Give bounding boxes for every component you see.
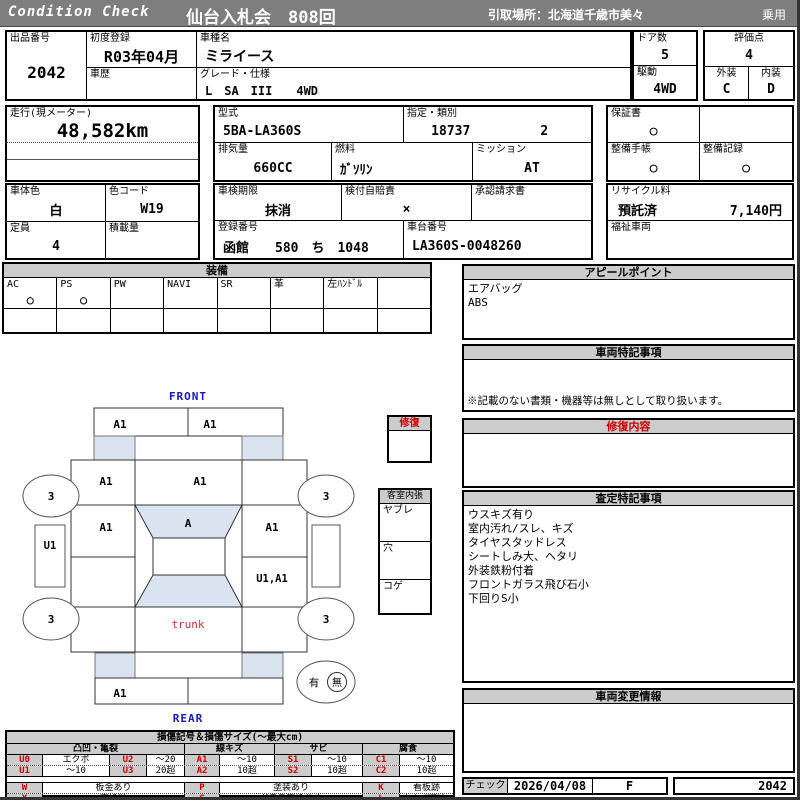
drive-label: 駆動 [634,66,696,79]
recycle-cell: リサイクル料 預託済 7,140円 [608,185,792,221]
tool-yes-label: 有 [309,676,320,689]
chassis-label: 車台番号 [404,221,591,234]
color-code-value: W19 [106,198,198,221]
model-code-label: 型式 [215,107,403,120]
assessment-panel: 査定特記事項 ウスキズ有り 室内汚れ/スレ、キズ タイヤスタッドレス シートしみ… [462,490,795,683]
approval-label: 承認請求書 [472,185,591,198]
equipment-row-empty [4,309,430,332]
equip-ps-label: PS [57,278,109,291]
appeal-line: ABS [468,296,789,310]
appeal-line: エアバッグ [468,282,789,296]
class-number-value1: 18737 [404,120,498,142]
body-color-value: 白 [7,198,105,221]
mileage-label: 走行(現メーター) [7,107,198,120]
change-info-header: 車両変更情報 [464,690,793,704]
front-door-right-code: A1 [265,521,279,534]
roof [153,538,225,575]
legend-code: C2 [363,766,400,776]
assessment-header: 査定特記事項 [464,492,793,506]
doors-drive-box: ドア数 5 駆動 4WD [632,30,698,101]
equip-ps-value: ○ [57,291,109,308]
legend-desc: 10超 [220,766,275,776]
interior-value: D [749,80,793,99]
legend-desc: 10超 [312,766,363,776]
appeal-panel: アピールポイント エアバッグ ABS [462,264,795,340]
exterior-label: 外装 [705,67,748,80]
service-book-cell: 整備手帳 ○ [608,143,700,180]
vehicle-notes-disclaimer: ※記載のない書類・機器等は無しとして取り扱います。 [467,393,728,408]
repair-content-header: 修復内容 [464,420,793,434]
history-cell: 車歴 [87,68,196,99]
front-bumper-left-code: A1 [113,418,127,431]
wheel-front-right-code: 3 [323,490,330,503]
recycle-box: リサイクル料 預託済 7,140円 福祉車両 [606,183,794,260]
check-lot-value: 2042 [675,779,793,793]
equip-ac-label: AC [4,278,56,291]
welfare-value [608,234,792,258]
assessment-line: 下回りS小 [468,592,789,606]
payload-value [106,235,198,258]
wheel-front-left-code: 3 [48,490,55,503]
fuel-label: 燃料 [332,143,472,156]
wheel-rear-right-code: 3 [323,613,330,626]
color-code-cell: 色コード W19 [106,185,198,221]
legend-code: A2 [185,766,220,776]
legend-desc: ～20 [147,755,185,765]
auction-title: 仙台入札会 808回 [186,3,336,28]
recycle-status: 預託済 [618,200,657,219]
legend-code: C1 [363,755,400,765]
rear-door-right-code: U1,A1 [256,573,288,585]
plate-value: 函館 580 ち 1048 [215,234,403,258]
legend-group-corrosion: 腐食 [363,744,453,754]
top-info-box: 出品番号 2042 初度登録 R03年04月 車歴 車種名 ミライース グレード… [5,30,632,101]
score-label: 評価点 [705,32,793,45]
meter-history-row2 [7,159,198,183]
check-lot-box: 2042 [673,777,795,795]
legend-desc: 10超 [400,766,453,776]
warranty-cell: 保証書 ○ [608,107,700,142]
first-registration-cell: 初度登録 R03年04月 [87,32,196,68]
service-book-label: 整備手帳 [608,143,699,156]
inspection-value: 抹消 [215,198,341,220]
windshield-code: A [185,517,192,530]
repair-mark-header: 修復 [389,417,430,431]
assessment-line: 室内汚れ/スレ、キズ [468,522,789,536]
service-book-value: ○ [608,156,699,180]
registration-box: 車検期限 抹消 検付自賠責 × 承認請求書 登録番号 函館 580 ち 1048… [213,183,593,260]
payload-cell: 積載量 [106,222,198,258]
ext-int-row: 外装 C 内装 D [705,67,793,99]
grade-cell: グレード・仕様 L SA III 4WD [197,68,630,99]
model-cell: 車種名 ミライース [197,32,630,68]
equip-pw-label: PW [111,278,163,291]
pickup-location: 引取場所：北海道千歳市美々 [488,6,644,23]
exterior-value: C [705,80,748,99]
legend-desc: エクボ [43,755,110,765]
approval-cell: 承認請求書 [472,185,591,220]
class-number-value2: 2 [498,120,592,142]
transmission-label: ミッション [473,143,591,156]
capacity-label: 定員 [7,222,105,235]
equipment-header: 装備 [4,264,430,278]
service-record-cell: 整備記録 ○ [700,143,792,180]
front-bumper-right-code: A1 [203,418,217,431]
recycle-label: リサイクル料 [608,185,792,198]
drive-cell: 駆動 4WD [634,66,696,99]
capacity-cell: 定員 4 [7,222,106,258]
history-value [87,81,196,99]
equip-leather-value [271,291,323,308]
sill-right [312,525,340,587]
repair-mark-box: 修復 [387,415,432,463]
check-label: チェック [464,779,508,793]
equip-navi-value [164,291,216,308]
displacement-value: 660CC [215,156,331,180]
legend-code: U0 [7,755,43,765]
rear-bumper-left-code: A1 [113,687,127,700]
doors-value: 5 [634,45,696,65]
inspection-cell: 車検期限 抹消 [215,185,342,220]
exterior-cell: 外装 C [705,67,749,99]
class-number-label: 指定・類別 [404,107,591,120]
brand-logo: Condition Check [8,4,149,20]
legend-desc: 20超 [147,766,185,776]
meter-history-row1 [7,142,198,159]
displacement-cell: 排気量 660CC [215,143,332,180]
drive-value: 4WD [634,79,696,99]
cabin-lining-box: 客室内張 ヤブレ 穴 コゲ [378,488,432,615]
class-number-cell: 指定・類別 18737 2 [404,107,591,142]
legend-group-rust: サビ [275,744,363,754]
car-diagram: FRONT A1 A1 A1 A1 A A1 A1 U1,A1 trunk U1… [10,388,370,736]
rear-label: REAR [173,712,204,725]
interior-label: 内装 [749,67,793,80]
model-code-value: 5BA-LA360S [215,120,403,142]
grade-label: グレード・仕様 [197,68,630,81]
taillight-right [242,653,283,678]
appeal-header: アピールポイント [464,266,793,280]
chassis-value: LA360S-0048260 [404,234,591,258]
modelcode-class-row: 型式 5BA-LA360S 指定・類別 18737 2 [215,107,591,143]
approval-value [472,198,591,220]
cabin-hole-label: 穴 [380,542,430,555]
service-record-value: ○ [700,156,792,180]
fuel-value: ｶﾞｿﾘﾝ [332,156,472,180]
assessment-line: ウスキズ有り [468,508,789,522]
legend-code: W [7,783,43,793]
legend-desc: ～10 [220,755,275,765]
sill-left [35,525,65,587]
legend-title: 損傷記号＆損傷サイズ(～最大cm) [7,732,453,744]
body-color-label: 車体色 [7,185,105,198]
color-code-label: 色コード [106,185,198,198]
equip-sr-value [218,291,270,308]
plate-label: 登録番号 [215,221,403,234]
welfare-cell: 福祉車両 [608,221,792,258]
check-bar: チェック 2026/04/08 F [462,777,668,795]
warranty-label: 保証書 [608,107,699,120]
score-cell: 評価点 4 [705,32,793,67]
assessment-line: フロントガラス飛び石小 [468,578,789,592]
model-code-cell: 型式 5BA-LA360S [215,107,404,142]
equipment-box: 装備 AC○ PS○ PW NAVI SR 革 左ﾊﾝﾄﾞﾙ [2,262,432,334]
title-bar: Condition Check 仙台入札会 808回 引取場所：北海道千歳市美々… [0,0,800,27]
legend-code: P [185,783,220,793]
legend-code: A1 [185,755,220,765]
first-registration-value: R03年04月 [87,45,196,67]
liability-cell: 検付自賠責 × [342,185,472,220]
liability-label: 検付自賠責 [342,185,471,198]
legend-code: S2 [275,766,312,776]
legend-code: U3 [110,766,147,776]
cabin-burn-label: コゲ [380,580,430,593]
legend-code: S1 [275,755,312,765]
vehicle-notes-panel: 車両特記事項 ※記載のない書類・機器等は無しとして取り扱います。 [462,344,795,412]
mileage-value: 48,582km [7,120,198,142]
first-registration-label: 初度登録 [87,32,196,45]
chassis-cell: 車台番号 LA360S-0048260 [404,221,591,258]
legend-group-scratch: 線キズ [185,744,275,754]
equip-lhd-value [324,291,376,308]
assessment-line: 外装鉄粉付着 [468,564,789,578]
assessment-line: シートしみ大、ヘタリ [468,550,789,564]
front-door-left-code: A1 [99,521,113,534]
model-value: ミライース [197,45,630,67]
vehicle-category: 乗用 [762,6,786,23]
displacement-label: 排気量 [215,143,331,156]
legend-desc: 塗装あり [220,783,363,793]
transmission-cell: ミッション AT [473,143,591,180]
score-value: 4 [705,45,793,66]
interior-cell: 内装 D [749,67,793,99]
auction-sheet: Condition Check 仙台入札会 808回 引取場所：北海道千歳市美々… [0,0,800,800]
service-record-label: 整備記録 [700,143,792,156]
front-fender-left-code: A1 [99,475,113,488]
rear-window [135,575,242,607]
check-date: 2026/04/08 [508,779,593,793]
engine-row: 排気量 660CC 燃料 ｶﾞｿﾘﾝ ミッション AT [215,143,591,180]
model-grade-col: 車種名 ミライース グレード・仕様 L SA III 4WD [197,32,630,99]
history-label: 車歴 [87,68,196,81]
hood-code: A1 [193,475,207,488]
grade-value: L SA III 4WD [197,81,630,99]
trunk-label: trunk [171,618,204,631]
lot-number-label: 出品番号 [7,32,86,45]
legend-code: U1 [7,766,43,776]
vehicle-notes-header: 車両特記事項 [464,346,793,360]
mileage-box: 走行(現メーター) 48,582km [5,105,200,182]
taillight-left [95,653,135,678]
repair-content-panel: 修復内容 [462,418,795,488]
cabin-lining-header: 客室内張 [380,490,430,504]
score-box: 評価点 4 外装 C 内装 D [703,30,795,101]
sill-left-code: U1 [44,540,57,552]
headlight-left [94,436,135,461]
doors-label: ドア数 [634,32,696,45]
equip-ac-value: ○ [4,291,56,308]
equip-extra-value [378,280,430,308]
legend-desc: 看板跡 [400,783,453,793]
equip-navi-label: NAVI [164,278,216,291]
equip-lhd-label: 左ﾊﾝﾄﾞﾙ [324,278,376,291]
lot-number-cell: 出品番号 2042 [7,32,87,99]
model-label: 車種名 [197,32,630,45]
fuel-cell: 燃料 ｶﾞｿﾘﾝ [332,143,473,180]
engine-box: 型式 5BA-LA360S 指定・類別 18737 2 排気量 660CC 燃料… [213,105,593,182]
check-grade: F [593,779,666,793]
front-label: FRONT [169,390,207,403]
damage-legend: 損傷記号＆損傷サイズ(～最大cm) 凸凹・亀裂 線キズ サビ 腐食 U0 エクボ… [5,730,455,797]
wheel-rear-left-code: 3 [48,613,55,626]
legend-code: K [363,783,400,793]
cabin-tear-label: ヤブレ [380,504,430,517]
doors-cell: ドア数 5 [634,32,696,66]
tool-no-label: 無 [332,676,342,689]
legend-code: U2 [110,755,147,765]
legend-desc: 板金あり [43,783,185,793]
liability-value: × [342,198,471,220]
equip-pw-value [111,291,163,308]
legend-group-dent: 凸凹・亀裂 [7,744,185,754]
body-color-cell: 車体色 白 [7,185,106,221]
documents-empty-cell [700,107,792,142]
plate-cell: 登録番号 函館 580 ち 1048 [215,221,404,258]
legend-desc: ～10 [43,766,110,776]
assessment-line: タイヤスタッドレス [468,536,789,550]
documents-box: 保証書 ○ 整備手帳 ○ 整備記録 ○ [606,105,794,182]
change-info-panel: 車両変更情報 [462,688,795,773]
recycle-fee: 7,140円 [730,200,782,219]
payload-label: 積載量 [106,222,198,235]
transmission-value: AT [473,156,591,180]
warranty-value: ○ [608,120,699,142]
equipment-row: AC○ PS○ PW NAVI SR 革 左ﾊﾝﾄﾞﾙ [4,278,430,309]
equip-leather-label: 革 [271,278,323,291]
color-box: 車体色 白 色コード W19 定員 4 積載量 [5,183,200,260]
equip-sr-label: SR [218,278,270,291]
capacity-value: 4 [7,235,105,258]
headlight-right [242,436,283,461]
inspection-label: 車検期限 [215,185,341,198]
legend-desc: ～10 [400,755,453,765]
reg-history-col: 初度登録 R03年04月 車歴 [87,32,197,99]
lot-number-value: 2042 [7,45,86,99]
legend-desc: ～10 [312,755,363,765]
welfare-label: 福祉車両 [608,221,792,234]
